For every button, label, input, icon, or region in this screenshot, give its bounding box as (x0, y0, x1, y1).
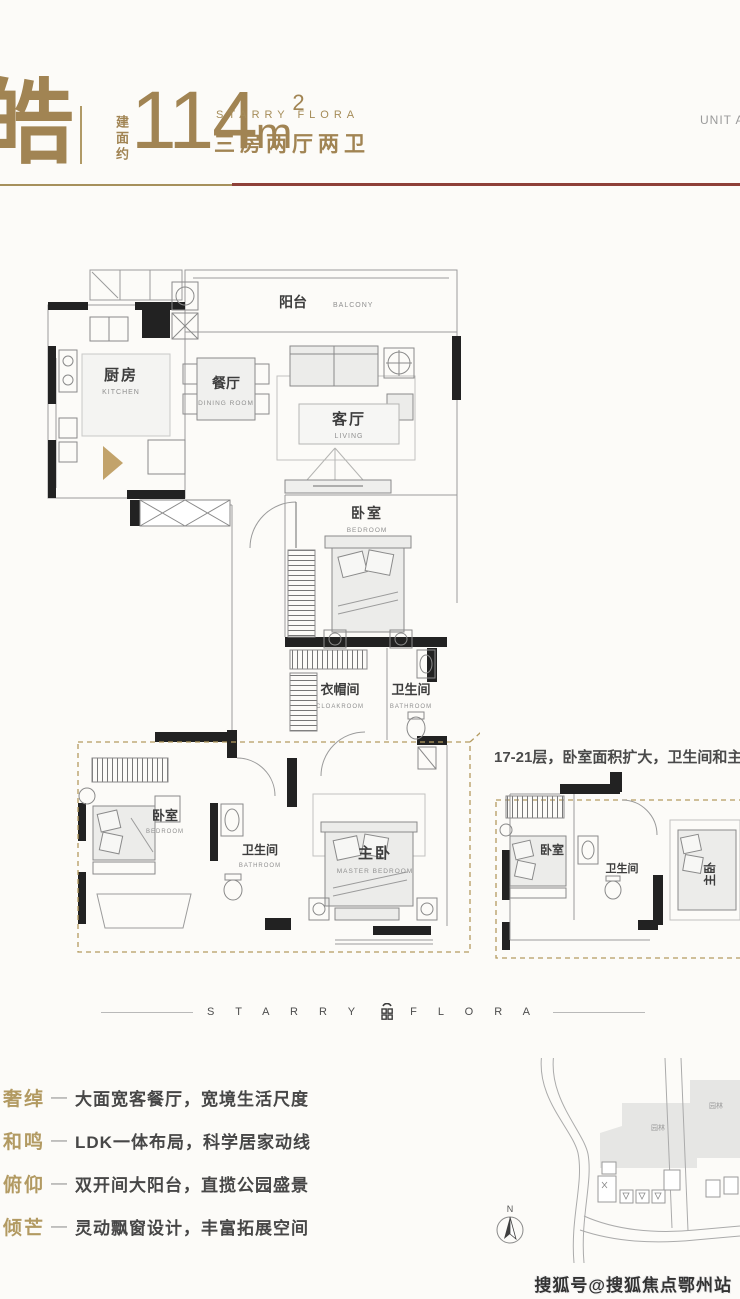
kitchen-label-cn: 厨房 (104, 366, 138, 384)
variant-bedroom-label: 卧室 (540, 842, 564, 857)
room-cloakroom: 衣帽间 CLOAKROOM (290, 650, 367, 731)
feature-dash: — (51, 1175, 67, 1193)
wardrobe-icon (288, 550, 315, 637)
living-label-en: LIVING (335, 433, 364, 440)
brand-word-left: S T A R R Y (207, 1006, 364, 1018)
watermark-text: 搜狐号@搜狐焦点鄂州站 (534, 1271, 732, 1296)
variant-floor-note: 17-21层，卧室面积扩大，卫生间和主卧 (494, 746, 740, 767)
feature-row: 倾芒 — 灵动飘窗设计，丰富拓展空间 (3, 1215, 311, 1238)
feature-row: 奢绰 — 大面宽客餐厅，宽境生活尺度 (3, 1086, 311, 1109)
room-bedroom-lower: 卧室 BEDROOM (79, 758, 191, 928)
header-rule-gold (0, 184, 232, 186)
feature-desc: LDK一体布局，科学居家动线 (75, 1128, 311, 1153)
cloakroom-label-en: CLOAKROOM (316, 704, 364, 710)
bedroom-label-cn: 卧室 (351, 505, 383, 521)
bay-window-icon (97, 894, 191, 928)
north-label: N (507, 1204, 514, 1214)
bathroom-label-cn: 卫生间 (391, 682, 430, 697)
feature-row: 俯仰 — 双开间大阳台，直揽公园盛景 (3, 1172, 311, 1195)
room-bathroom-lower: 卫生间 BATHROOM (221, 758, 281, 900)
feature-list: 奢绰 — 大面宽客餐厅，宽境生活尺度 和鸣 — LDK一体布局，科学居家动线 俯… (3, 1086, 311, 1258)
variant-bathroom-label: 卫生间 (606, 861, 639, 875)
variant-bedroom: 卧室 (500, 796, 566, 898)
room-dining: 餐厅 DINING ROOM (183, 358, 269, 420)
divider-line-left (101, 1012, 193, 1013)
area-prefix-label: 建面约 (112, 115, 131, 163)
room-kitchen: 厨房 KITCHEN (59, 317, 185, 474)
site-map: 园林 园林 N (480, 1058, 740, 1263)
feature-desc: 大面宽客餐厅，宽境生活尺度 (75, 1085, 309, 1110)
bedroom2-label-cn: 卧室 (152, 808, 178, 823)
toilet-icon (224, 880, 242, 900)
entrance-arrow-icon (103, 446, 123, 480)
header-rule-red (232, 183, 740, 186)
bedroom-label-en: BEDROOM (347, 527, 388, 534)
hanger-rail-icon (290, 650, 367, 669)
header-vertical-divider (80, 106, 82, 164)
park-label: 园林 (709, 1101, 723, 1110)
compass-icon: N (497, 1204, 523, 1243)
feature-desc: 双开间大阳台，直揽公园盛景 (75, 1171, 309, 1196)
bathroom2-label-en: BATHROOM (239, 863, 281, 869)
feature-desc: 灵动飘窗设计，丰富拓展空间 (75, 1214, 309, 1239)
park-label: 园林 (651, 1123, 665, 1132)
bathroom-label-en: BATHROOM (390, 704, 432, 710)
toilet-icon (407, 717, 425, 739)
map-parks (600, 1080, 740, 1168)
feature-term: 和鸣 (3, 1127, 45, 1154)
brand-word-right: F L O R A (410, 1006, 539, 1018)
feature-dash: — (51, 1089, 67, 1107)
dining-label-cn: 餐厅 (211, 375, 240, 391)
feature-term: 倾芒 (3, 1213, 45, 1240)
unit-name-character: 皓 (0, 78, 74, 170)
layout-type-label: 三房两厅两卫 (214, 128, 370, 158)
feature-row: 和鸣 — LDK一体布局，科学居家动线 (3, 1129, 311, 1152)
room-balcony: 阳台 BALCONY (172, 282, 373, 339)
brand-divider: S T A R R Y F L O R A (95, 1002, 651, 1022)
bathroom2-label-cn: 卫生间 (242, 842, 278, 857)
room-living: 客厅 LIVING (277, 346, 415, 493)
variant-floorplan: 卧室 卫生间 主卧 (490, 770, 740, 965)
feature-dash: — (51, 1132, 67, 1150)
unit-area-caption: UNIT AREA (700, 113, 740, 127)
master-label-cn: 主卧 (358, 844, 392, 862)
cloakroom-label-cn: 衣帽间 (320, 682, 359, 697)
variant-master: 主卧 (670, 820, 740, 920)
floorplan-page: { "header": { "name_char": "皓", "area_la… (0, 0, 740, 1299)
feature-term: 奢绰 (3, 1084, 45, 1111)
feature-term: 俯仰 (3, 1170, 45, 1197)
feature-dash: — (51, 1218, 67, 1236)
variant-master-label: 主卧 (702, 862, 717, 886)
main-floorplan: 阳台 BALCONY 厨房 KITCHEN 餐厅 DINING ROOM (35, 258, 480, 965)
bedroom2-label-en: BEDROOM (146, 829, 184, 835)
kitchen-label-en: KITCHEN (102, 389, 140, 396)
master-label-en: MASTER BEDROOM (337, 868, 413, 875)
dining-label-en: DINING ROOM (198, 400, 254, 407)
wardrobe-icon (290, 673, 317, 731)
room-master-bedroom: 主卧 MASTER BEDROOM (309, 732, 437, 944)
map-buildings (598, 1162, 738, 1203)
balcony-label-en: BALCONY (333, 302, 373, 309)
room-bedroom-middle: 卧室 BEDROOM (288, 505, 412, 648)
living-label-cn: 客厅 (331, 410, 366, 428)
toilet-icon (605, 881, 621, 899)
brand-name-english: STARRY FLORA (216, 109, 359, 121)
balcony-label-cn: 阳台 (279, 294, 307, 310)
brand-seal-icon (378, 1003, 396, 1021)
hanger-rail-icon (92, 758, 168, 782)
variant-bathroom: 卫生间 (578, 836, 639, 899)
divider-line-right (553, 1012, 645, 1013)
